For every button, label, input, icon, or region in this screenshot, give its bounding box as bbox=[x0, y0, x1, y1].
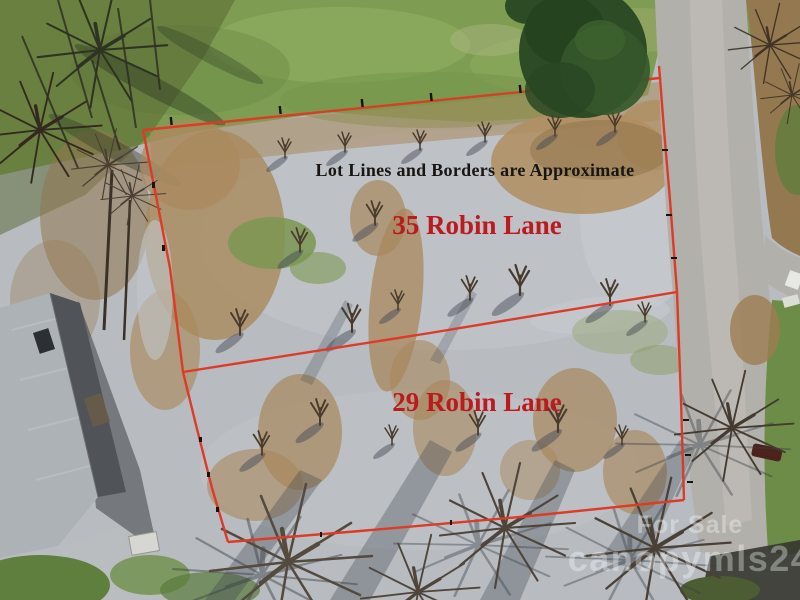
aerial-photo: Lot Lines and Borders are Approximate 35… bbox=[0, 0, 800, 600]
disclaimer-text: Lot Lines and Borders are Approximate bbox=[316, 160, 635, 181]
mls-watermark: For Sale canopymls24 bbox=[565, 513, 800, 577]
watermark-canopy-logo: canopymls24 bbox=[565, 541, 800, 577]
lot-35-label: 35 Robin Lane bbox=[392, 210, 562, 241]
lot-29-label: 29 Robin Lane bbox=[392, 387, 562, 418]
aerial-photo-background bbox=[0, 0, 800, 600]
watermark-for-sale: For Sale bbox=[565, 513, 800, 538]
